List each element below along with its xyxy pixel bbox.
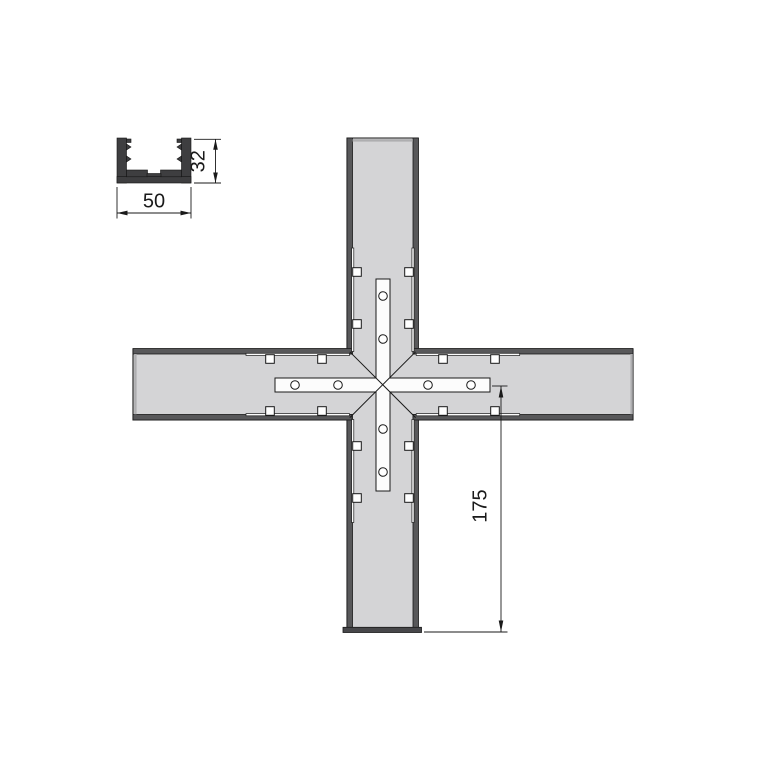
mounting-hole — [405, 494, 414, 503]
arrowhead-icon — [213, 139, 218, 150]
mounting-hole — [491, 355, 500, 364]
plate-hole — [291, 381, 300, 390]
section-base — [117, 177, 191, 184]
section-barb — [127, 156, 132, 162]
section-lip-right — [177, 139, 182, 143]
right-arm-end-edge — [630, 354, 632, 414]
dimension-width: 50 — [117, 187, 191, 219]
slot-left-arm-top — [246, 353, 350, 355]
mounting-hole — [318, 407, 327, 416]
slot-top-arm-left — [352, 248, 354, 352]
dimension-arm-length-label: 175 — [470, 489, 492, 522]
section-floor-slot — [147, 174, 161, 177]
plate-hole — [379, 335, 388, 344]
arrowhead-icon — [117, 211, 128, 216]
plate-hole — [467, 381, 476, 390]
slot-bottom-arm-left — [352, 420, 354, 523]
mounting-hole — [405, 442, 414, 451]
mounting-hole — [353, 268, 362, 277]
slot-right-arm-bottom — [416, 414, 520, 416]
mounting-hole — [266, 355, 275, 364]
section-barb — [177, 144, 182, 150]
mounting-hole — [353, 442, 362, 451]
mounting-hole — [266, 407, 275, 416]
cross-plan-view — [133, 138, 633, 633]
slot-left-arm-bottom — [246, 414, 350, 416]
section-barb — [177, 156, 182, 162]
section-barb — [127, 144, 132, 150]
technical-drawing: 50 32 175 — [0, 0, 768, 768]
plate-hole — [379, 292, 388, 301]
mounting-hole — [405, 320, 414, 329]
mounting-hole — [439, 407, 448, 416]
slot-bottom-arm-right — [412, 420, 414, 523]
dimension-width-label: 50 — [143, 191, 165, 213]
plate-hole — [379, 425, 388, 434]
bottom-arm-end-band — [343, 627, 422, 632]
section-floor-right — [161, 170, 182, 177]
arrowhead-icon — [181, 211, 192, 216]
mounting-hole — [491, 407, 500, 416]
dimension-height: 32 — [188, 139, 222, 183]
plate-hole — [379, 468, 388, 477]
section-lip-left — [127, 139, 132, 143]
drawing-canvas: 50 32 175 — [0, 0, 768, 768]
top-arm-end-edge — [353, 139, 413, 141]
mounting-hole — [318, 355, 327, 364]
profile-section-view — [117, 138, 191, 183]
mounting-hole — [405, 268, 414, 277]
plate-hole — [334, 381, 343, 390]
mounting-hole — [439, 355, 448, 364]
dimension-arm-length: 175 — [424, 386, 508, 632]
dimension-height-label: 32 — [188, 150, 210, 172]
plate-hole — [424, 381, 433, 390]
mounting-hole — [353, 494, 362, 503]
mounting-hole — [353, 320, 362, 329]
section-floor-left — [127, 170, 148, 177]
slot-top-arm-right — [412, 248, 414, 352]
arrowhead-icon — [213, 173, 218, 184]
left-arm-end-edge — [134, 354, 136, 414]
slot-right-arm-top — [416, 353, 520, 355]
arrowhead-icon — [499, 621, 504, 633]
